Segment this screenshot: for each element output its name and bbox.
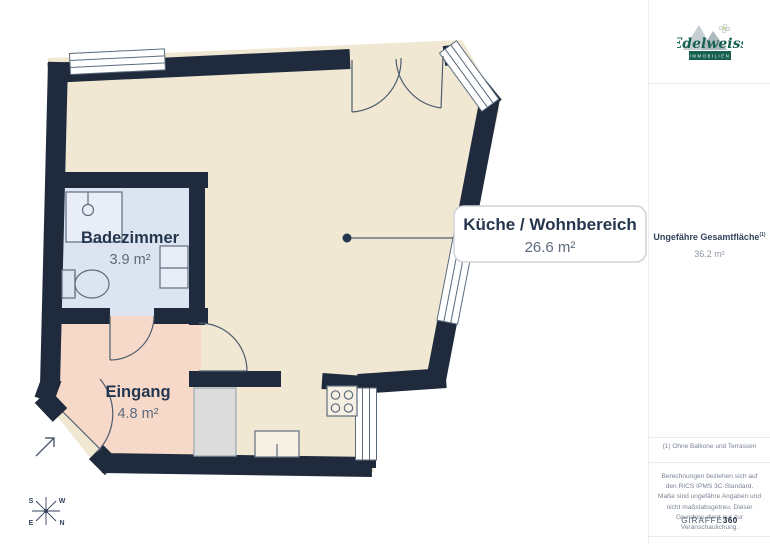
compass-icon: S W E N	[29, 497, 66, 527]
info-sidebar: Edelweiss IMMOBILIEN Ungefähre Gesamtflä…	[648, 0, 770, 545]
entrance-arrow-icon	[36, 438, 54, 456]
window-top	[69, 49, 165, 75]
wardrobe	[194, 388, 236, 456]
bathroom-area: 3.9 m²	[109, 252, 150, 268]
living-label: Küche / Wohnbereich	[463, 215, 637, 234]
footnote-marker: (1)	[759, 232, 765, 238]
footnote-text: (1) Ohne Balkone und Terrassen	[649, 443, 770, 450]
floor-plan: Badezimmer 3.9 m² Eingang 4.8 m² Küche /…	[0, 0, 648, 545]
logo-tagline-text: IMMOBILIEN	[689, 54, 730, 59]
leader-dot	[343, 234, 352, 243]
compass-e: E	[29, 520, 34, 527]
compass-s: S	[29, 498, 34, 505]
compass-n: N	[59, 520, 64, 527]
living-area: 26.6 m²	[525, 239, 576, 256]
bathroom-label: Badezimmer	[81, 229, 180, 247]
total-area-label: Ungefähre Gesamtfläche(1)	[649, 232, 770, 244]
entrance-area: 4.8 m²	[117, 406, 158, 422]
divider	[649, 83, 770, 84]
kitchen-unit-icon	[255, 431, 299, 457]
total-area-block: Ungefähre Gesamtfläche(1) 36.2 m²	[649, 232, 770, 259]
sink-icon	[160, 246, 188, 288]
divider	[649, 536, 770, 537]
divider	[649, 437, 770, 438]
total-area-value: 36.2 m²	[649, 249, 770, 259]
divider	[649, 462, 770, 463]
window-bottom	[356, 388, 377, 460]
compass-w: W	[59, 498, 66, 505]
entrance-label: Eingang	[105, 383, 170, 401]
logo-brand-text: Edelweiss	[677, 36, 743, 52]
stove-icon	[327, 386, 357, 416]
agency-logo: Edelweiss IMMOBILIEN	[649, 10, 770, 72]
logo-flower-icon	[719, 24, 730, 33]
giraffe360-credit: GIRAFFE360	[649, 516, 770, 525]
toilet-icon	[62, 270, 109, 298]
